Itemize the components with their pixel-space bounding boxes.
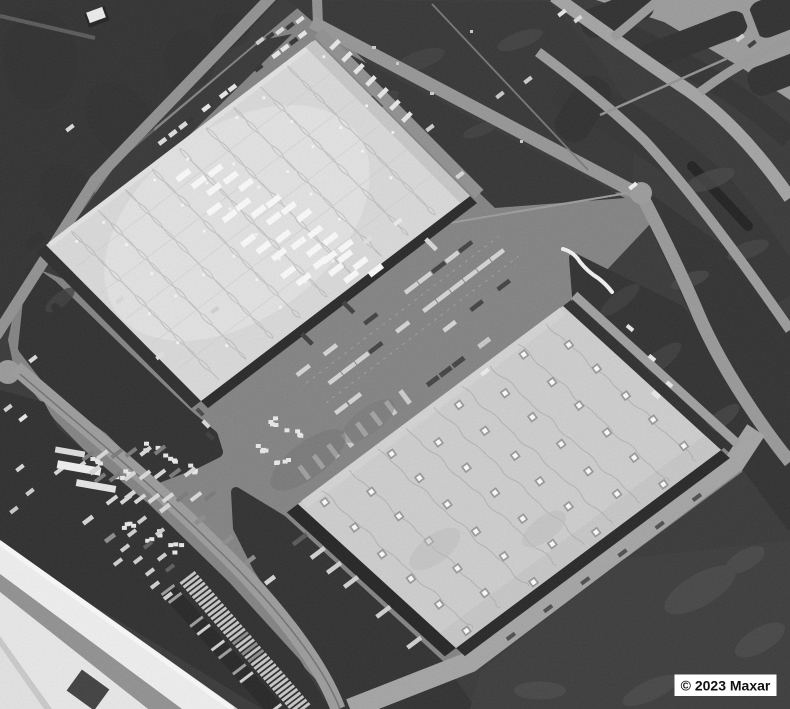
svg-text:© 2023 Maxar: © 2023 Maxar [681,678,771,694]
